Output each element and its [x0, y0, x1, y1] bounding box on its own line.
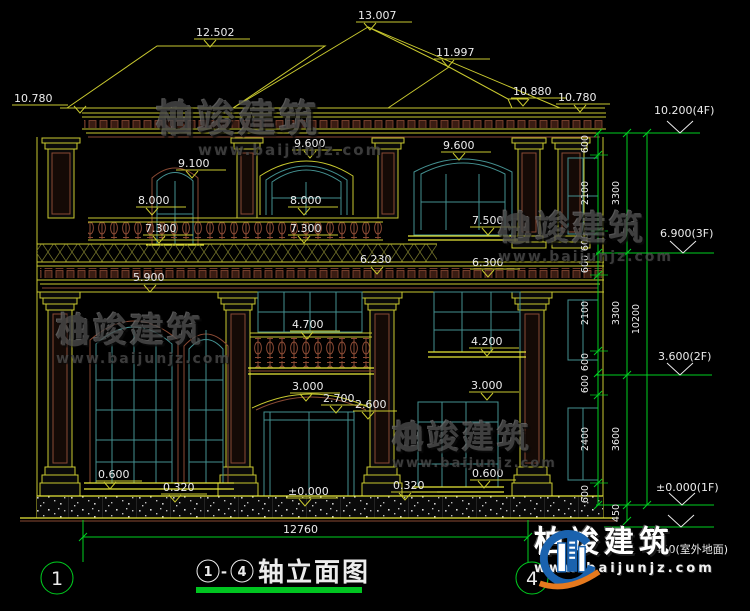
chain-dim: 600	[580, 255, 591, 273]
chain-dim: 600	[580, 485, 591, 503]
cad-canvas: 12.50213.00711.99710.88010.78010.7809.60…	[0, 0, 750, 611]
dim-text: 4.200	[471, 335, 503, 348]
dim-label-roof-peak: 13.007	[356, 9, 412, 30]
chain-dim: 600	[580, 135, 591, 153]
dim-text: 9.600	[443, 139, 475, 152]
column-2f	[40, 292, 80, 518]
chain-dim-total: 10200	[631, 304, 642, 334]
title-text: 轴立面图	[258, 557, 370, 588]
dim-text: 10.780	[558, 91, 597, 104]
dim-text: 3.000	[292, 380, 324, 393]
dim-text: 4.700	[292, 318, 324, 331]
chain-dim: 3300	[611, 181, 622, 205]
dim-text: 7.300	[290, 222, 322, 235]
dim-text: 0.320	[163, 481, 195, 494]
chain-dim: 450	[611, 504, 622, 522]
chain-dim: 600	[580, 353, 591, 371]
chain-dim: 2100	[580, 301, 591, 325]
drawing-title: 1 - 4 轴立面图	[196, 557, 370, 593]
dim-text: 10.880	[513, 85, 552, 98]
dim-text: 2.600	[355, 398, 387, 411]
title-dash: -	[221, 563, 227, 581]
brand-logo-icon	[534, 528, 606, 594]
chain-dim: 600	[580, 375, 591, 393]
level-text: ±0.000(1F)	[656, 481, 719, 494]
dim-text: 7.500	[472, 214, 504, 227]
dim-label-sill-2f-right: 4.200	[469, 335, 519, 356]
dim-text: 3.000	[471, 379, 503, 392]
level-text: 6.900(3F)	[660, 227, 713, 240]
dim-text: ±0.000	[288, 485, 329, 498]
dim-text: 5.900	[133, 271, 165, 284]
column-3f	[372, 138, 404, 218]
chain-dim: 2400	[580, 427, 591, 451]
dim-text: 10.780	[14, 92, 53, 105]
column-3f	[42, 138, 80, 218]
dim-label-win-3f-right-top: 9.600	[441, 139, 491, 160]
dim-text: 9.100	[178, 157, 210, 170]
dim-text: 13.007	[358, 9, 397, 22]
title-axis-right: 4	[237, 565, 246, 580]
title-underline	[196, 587, 362, 593]
column-3f	[512, 138, 546, 248]
dim-text: 2.700	[323, 392, 355, 405]
dim-label-balcony-rail-2f: 4.700	[290, 318, 340, 339]
dim-text: 7.300	[145, 222, 177, 235]
dim-text: 0.320	[393, 479, 425, 492]
cornice-2f	[37, 262, 604, 292]
chain-dim: 3300	[611, 301, 622, 325]
dim-text: 8.000	[290, 194, 322, 207]
dim-label-roof-eave-right: 10.780	[556, 91, 610, 112]
level-text: 10.200(4F)	[654, 104, 714, 117]
dim-label-roof-ridge-left: 12.502	[194, 26, 250, 47]
level-marker-level-4f: 10.200(4F)	[596, 104, 714, 133]
right-dimension-stack: 10.200(4F)6.900(3F)3.600(2F)±0.000(1F)-0…	[580, 104, 728, 556]
chain-dim: 600	[580, 233, 591, 251]
dim-text: 9.600	[294, 137, 326, 150]
balcony-2f	[248, 292, 374, 374]
overall-width-dim: 12760	[283, 523, 318, 536]
elevation-drawing: 12.50213.00711.99710.88010.78010.7809.60…	[0, 0, 750, 611]
dim-text: 6.230	[360, 253, 392, 266]
column-2f	[512, 292, 552, 518]
chain-dim: 2100	[580, 181, 591, 205]
grand-windows-left	[84, 321, 234, 489]
level-marker-level-2f: 3.600(2F)	[596, 350, 712, 375]
dim-text: 8.000	[138, 194, 170, 207]
dim-label-sill-1f-right: 0.600	[470, 467, 516, 488]
level-text: 3.600(2F)	[658, 350, 711, 363]
dim-label-transom-3f-left: 8.000	[136, 194, 186, 215]
title-axis-left: 1	[203, 565, 212, 580]
dim-label-win-3f-center-top: 9.600	[292, 137, 342, 158]
dim-text: 0.600	[98, 468, 130, 481]
dim-text: 6.300	[472, 256, 504, 269]
level-marker-level-1f: ±0.000(1F)	[596, 481, 719, 505]
chain-dim: 3600	[611, 427, 622, 451]
column-2f	[218, 292, 258, 518]
axis-number-1: 1	[51, 568, 63, 590]
level-marker-level-3f: 6.900(3F)	[596, 227, 714, 253]
column-3f	[231, 138, 263, 218]
dim-label-sill-1f-left: 0.600	[96, 468, 142, 489]
dim-text: 12.502	[196, 26, 235, 39]
dim-label-transom-3f-center: 8.000	[288, 194, 338, 215]
dim-label-band-1f-right: 3.000	[469, 379, 519, 400]
base-plinth	[20, 496, 618, 521]
brand-logo: 柏竣建筑 www.baijunjz.com	[534, 528, 715, 576]
dim-text: 11.997	[436, 46, 475, 59]
dim-text: 0.600	[472, 467, 504, 480]
